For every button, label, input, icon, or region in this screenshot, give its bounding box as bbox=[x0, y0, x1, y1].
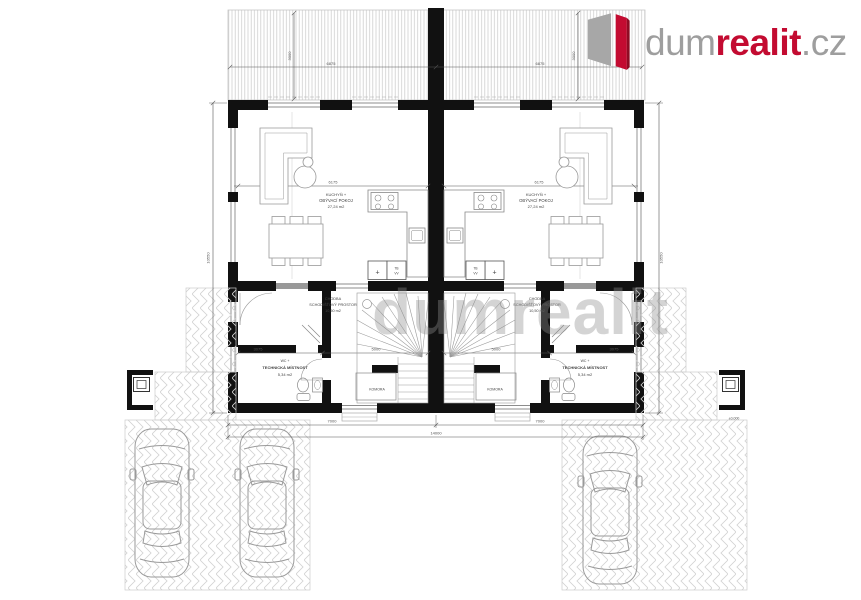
living-left-line2: OBÝVACÍ POKOJ bbox=[319, 198, 353, 203]
dim-seg-a-left: 3075 bbox=[254, 347, 264, 352]
dim-canopy-right: 6875 bbox=[536, 61, 546, 66]
dim-unit-width-right: 7000 bbox=[536, 418, 546, 423]
brand-prefix: dum bbox=[645, 22, 715, 63]
watermark-text: dumrealit bbox=[372, 276, 669, 348]
hall-left-line1: CHODBA bbox=[325, 297, 342, 301]
hall-left-area: 10,50 m2 bbox=[325, 309, 341, 313]
tech-left-area: 5,34 m2 bbox=[278, 372, 293, 377]
floorplan-page: 6875 6875 3000 3000 6175 6175 3075 5000 … bbox=[0, 0, 861, 600]
party-wall bbox=[428, 8, 444, 413]
brand-logo: dumrealit.cz bbox=[586, 10, 847, 74]
interior-door-panel bbox=[276, 283, 308, 289]
entrance-step bbox=[342, 413, 377, 421]
dim-total-width: 14000 bbox=[430, 430, 442, 435]
dim-unit-width-left: 7000 bbox=[328, 418, 338, 423]
closet-right-label: KOMORA bbox=[487, 388, 503, 392]
dim-canopy-depth-right: 3000 bbox=[571, 51, 576, 61]
dim-side-height-right: 10550 bbox=[659, 252, 664, 264]
living-left-area: 27,24 m2 bbox=[328, 204, 345, 209]
brand-highlight: realit bbox=[715, 22, 800, 63]
dim-living-width-left: 6175 bbox=[329, 180, 339, 185]
brand-logo-icon bbox=[586, 10, 638, 74]
tech-left-line1: WC + bbox=[281, 359, 290, 363]
tech-left-line2: TECHNICKÁ MÍSTNOST bbox=[262, 365, 308, 370]
closet-left-label: KOMORA bbox=[369, 388, 385, 392]
brand-suffix: .cz bbox=[801, 22, 847, 63]
living-right-area: 27,24 m2 bbox=[528, 204, 545, 209]
appliance-tb-right: TB bbox=[473, 267, 477, 271]
hall-left-line2: SCHODIŠŤOVÝ PROSTOR bbox=[309, 302, 357, 307]
living-left-line1: KUCHYŇ + bbox=[326, 192, 347, 197]
dim-living-width-right: 6175 bbox=[535, 180, 545, 185]
living-right-line2: OBÝVACÍ POKOJ bbox=[519, 198, 553, 203]
floorplan-drawing: 6875 6875 3000 3000 6175 6175 3075 5000 … bbox=[0, 0, 861, 600]
dim-side-height-left: 10550 bbox=[206, 252, 211, 264]
tech-right-area: 5,34 m2 bbox=[578, 372, 593, 377]
appliance-tb-left: TB bbox=[394, 267, 398, 271]
dim-canopy-depth-left: 3000 bbox=[287, 51, 292, 61]
tech-right-line1: WC + bbox=[581, 359, 590, 363]
dim-canopy-left: 6875 bbox=[327, 61, 337, 66]
living-right-line1: KUCHYŇ + bbox=[526, 192, 547, 197]
living-room-furniture bbox=[260, 128, 323, 266]
brand-logo-text: dumrealit.cz bbox=[645, 24, 847, 61]
level-datum-label: ±0,000 bbox=[729, 417, 740, 421]
tech-right-line2: TECHNICKÁ MÍSTNOST bbox=[562, 365, 608, 370]
gate-pillar bbox=[127, 370, 153, 410]
